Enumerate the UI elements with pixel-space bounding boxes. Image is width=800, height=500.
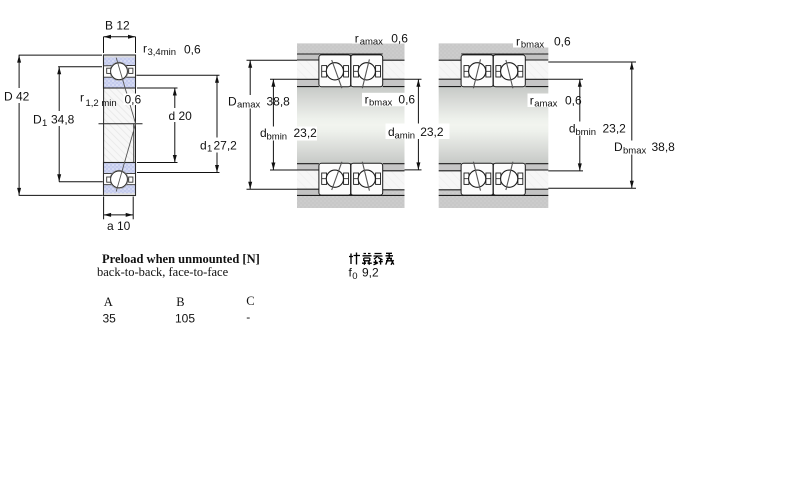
svg-text:r: r bbox=[80, 91, 84, 105]
svg-text:r: r bbox=[355, 32, 359, 46]
svg-text:d 20: d 20 bbox=[169, 109, 193, 123]
svg-text:9,2: 9,2 bbox=[362, 266, 379, 280]
svg-text:r: r bbox=[365, 93, 369, 107]
svg-text:35: 35 bbox=[103, 311, 117, 325]
svg-text:3,4min: 3,4min bbox=[148, 47, 177, 58]
svg-text:bmax: bmax bbox=[369, 98, 392, 109]
svg-text:0: 0 bbox=[352, 271, 357, 282]
svg-text:23,2: 23,2 bbox=[420, 125, 444, 139]
svg-text:C: C bbox=[246, 294, 254, 308]
svg-text:D 42: D 42 bbox=[4, 90, 30, 104]
svg-text:1: 1 bbox=[42, 118, 47, 129]
svg-text:a 10: a 10 bbox=[107, 219, 131, 233]
svg-text:34,8: 34,8 bbox=[51, 112, 75, 126]
svg-text:r: r bbox=[530, 94, 534, 108]
svg-text:D: D bbox=[228, 94, 237, 108]
svg-text:bmax: bmax bbox=[623, 146, 646, 157]
svg-text:38,8: 38,8 bbox=[267, 94, 291, 108]
svg-text:A: A bbox=[104, 295, 113, 309]
svg-text:amin: amin bbox=[395, 130, 416, 141]
svg-text:38,8: 38,8 bbox=[652, 140, 676, 154]
svg-text:B: B bbox=[176, 295, 184, 309]
svg-text:0,6: 0,6 bbox=[125, 93, 142, 107]
svg-text:r: r bbox=[143, 42, 147, 56]
svg-text:1: 1 bbox=[207, 144, 212, 155]
svg-text:back-to-back, face-to-face: back-to-back, face-to-face bbox=[97, 265, 229, 279]
svg-text:0,6: 0,6 bbox=[184, 43, 201, 57]
svg-text:105: 105 bbox=[175, 311, 195, 325]
svg-text:Preload when unmounted [N]: Preload when unmounted [N] bbox=[102, 252, 260, 266]
svg-text:B 12: B 12 bbox=[105, 18, 130, 32]
svg-text:amax: amax bbox=[360, 37, 383, 48]
svg-text:D: D bbox=[33, 112, 42, 126]
svg-text:d: d bbox=[200, 138, 207, 152]
svg-text:bmax: bmax bbox=[521, 40, 544, 51]
svg-text:amax: amax bbox=[534, 99, 557, 110]
svg-text:-: - bbox=[246, 310, 250, 324]
svg-text:0,6: 0,6 bbox=[554, 35, 571, 49]
svg-text:1,2 min: 1,2 min bbox=[86, 98, 117, 109]
svg-text:amax: amax bbox=[237, 100, 260, 111]
svg-text:bmin: bmin bbox=[575, 127, 596, 138]
svg-text:23,2: 23,2 bbox=[603, 122, 627, 136]
svg-text:0,6: 0,6 bbox=[391, 32, 408, 46]
svg-text:bmin: bmin bbox=[267, 132, 288, 143]
svg-text:23,2: 23,2 bbox=[294, 126, 318, 140]
svg-text:D: D bbox=[614, 140, 623, 154]
svg-text:27,2: 27,2 bbox=[214, 138, 238, 152]
svg-text:r: r bbox=[516, 35, 520, 49]
svg-text:0,6: 0,6 bbox=[398, 93, 415, 107]
